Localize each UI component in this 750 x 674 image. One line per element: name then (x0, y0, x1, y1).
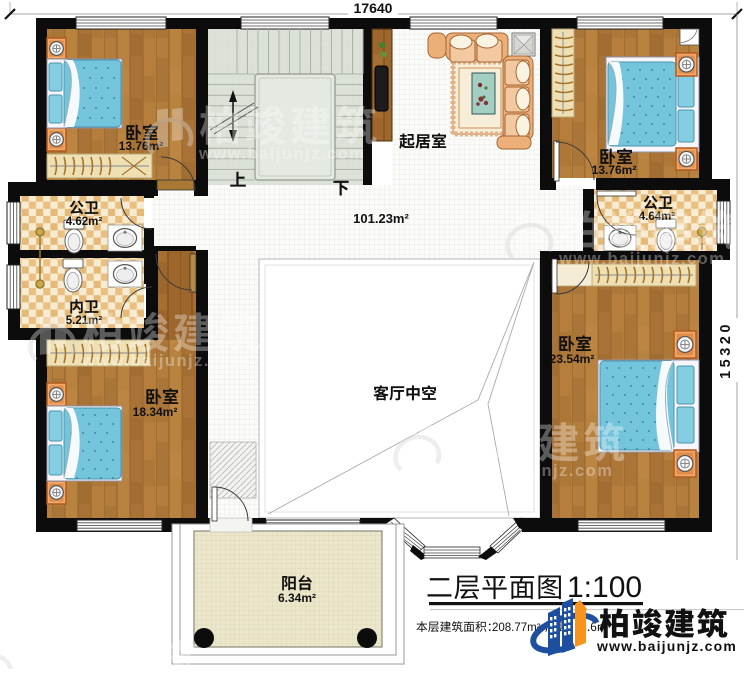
svg-text:17640: 17640 (354, 0, 393, 16)
svg-text:6.34m²: 6.34m² (278, 591, 316, 605)
svg-text:13.76m²: 13.76m² (119, 139, 164, 153)
svg-text:23.54m²: 23.54m² (550, 352, 595, 366)
svg-text:1:100: 1:100 (567, 571, 642, 604)
svg-text:4.62m²: 4.62m² (66, 216, 103, 228)
svg-text:13.76m²: 13.76m² (592, 163, 637, 177)
svg-text:15320: 15320 (718, 321, 734, 379)
svg-text:208.77m²: 208.77m² (492, 622, 541, 634)
svg-text:18.34m²: 18.34m² (133, 405, 178, 419)
svg-text:101.23m²: 101.23m² (353, 211, 409, 226)
svg-text:www.baijunjz.com: www.baijunjz.com (596, 638, 737, 654)
